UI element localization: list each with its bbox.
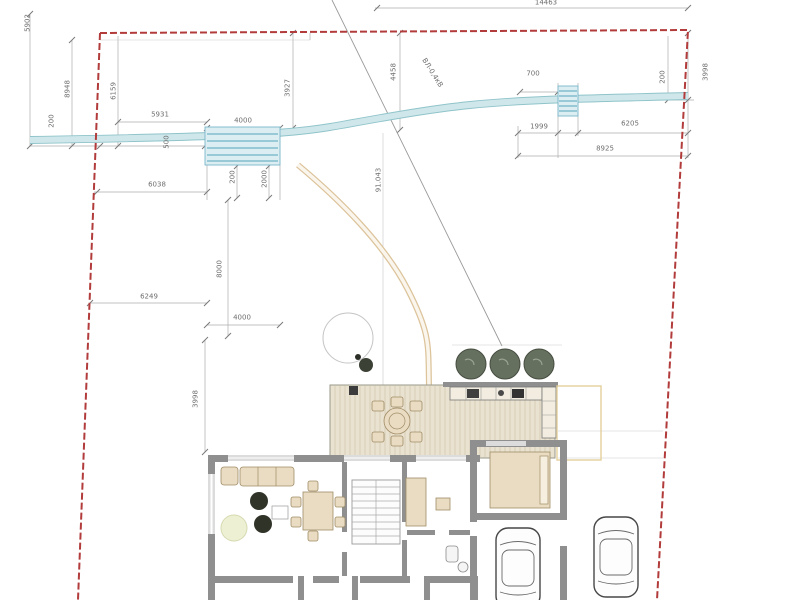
plant-icon [250,492,268,510]
site-plan-drawing: 1446359028948200615959314000392750044587… [0,0,800,600]
rug [221,515,247,541]
living-room-furniture [221,467,294,541]
grill-icon [349,386,358,395]
sink-icon [467,389,479,398]
stream-crossing-bridge [205,127,280,165]
plant-icon [254,515,272,533]
wardrobe [406,478,426,526]
dining-set [291,481,345,541]
sink-icon [458,562,468,572]
dining-table [303,492,333,530]
stream [30,93,688,144]
pillow [540,456,548,504]
staircase [352,480,400,544]
coffee-table [272,506,288,519]
plan-linework [0,0,800,600]
armchair [221,467,238,485]
tree-canopy-outline [323,313,373,372]
power-line [332,0,502,346]
stream-crossing-right [558,86,578,116]
garden-path [298,165,429,386]
car-2 [594,517,638,597]
toilet-icon [446,546,458,562]
sofa [240,467,294,486]
car-1 [496,528,540,600]
tree-row [456,349,554,379]
side-table [436,498,450,510]
cooktop-icon [512,389,524,398]
